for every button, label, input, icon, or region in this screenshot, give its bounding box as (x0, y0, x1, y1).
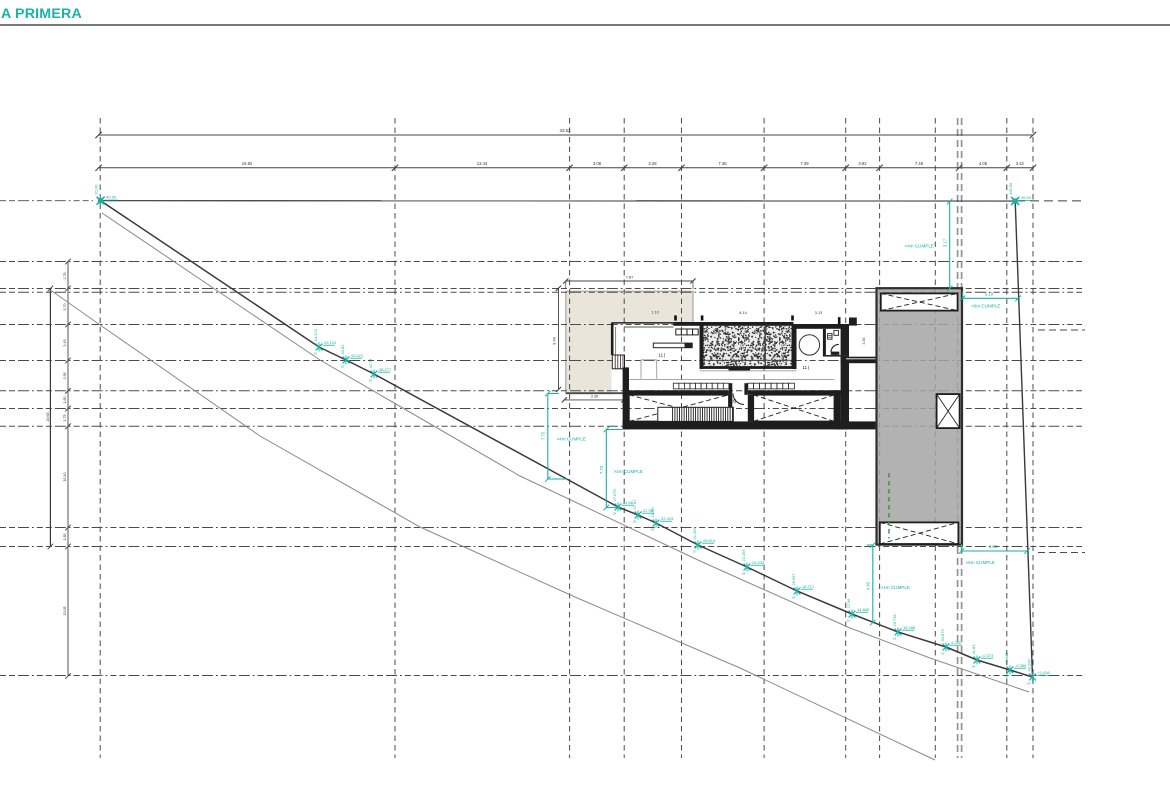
svg-text:27.679: 27.679 (612, 488, 617, 501)
svg-text:100.00: 100.00 (1008, 182, 1013, 195)
svg-text:27.87: 27.87 (632, 499, 637, 510)
svg-text:D9: D9 (792, 596, 796, 600)
svg-text:3.45: 3.45 (63, 340, 67, 347)
svg-text:18.288: 18.288 (903, 625, 916, 630)
svg-text:18.717: 18.717 (802, 584, 815, 589)
svg-text:D3: D3 (941, 652, 945, 656)
svg-text:7.70: 7.70 (599, 465, 604, 474)
svg-text:>4m CUMPLE: >4m CUMPLE (905, 244, 935, 249)
svg-text:3.17: 3.17 (942, 238, 947, 247)
svg-text:43.82: 43.82 (340, 344, 345, 355)
svg-text:7.46: 7.46 (915, 161, 924, 166)
svg-text:22.165: 22.165 (741, 548, 746, 561)
svg-text:D1: D1 (314, 352, 318, 356)
svg-text:16.82: 16.82 (242, 161, 253, 166)
svg-text:21.40: 21.40 (650, 507, 655, 518)
svg-text:33.62: 33.62 (560, 128, 572, 133)
svg-text:13.05: 13.05 (63, 607, 67, 616)
svg-text:20.65: 20.65 (46, 413, 50, 422)
svg-text:3.46: 3.46 (862, 338, 866, 345)
svg-text:3.28: 3.28 (648, 161, 657, 166)
svg-text:30.879: 30.879 (940, 628, 945, 641)
svg-text:26.814: 26.814 (703, 538, 716, 543)
svg-text:D6: D6 (1027, 682, 1031, 686)
svg-text:43.021: 43.021 (351, 353, 364, 358)
svg-text:3.13: 3.13 (815, 311, 822, 315)
svg-text:-0.373: -0.373 (982, 653, 994, 658)
svg-text:D4: D4 (613, 512, 617, 516)
svg-text:13.44: 13.44 (477, 161, 488, 166)
svg-text:5.19: 5.19 (985, 292, 994, 297)
svg-text:3.36: 3.36 (591, 395, 598, 399)
svg-text:>6m CUMPLE: >6m CUMPLE (966, 560, 996, 565)
svg-text:9.46: 9.46 (552, 337, 556, 344)
svg-text:40.60: 40.60 (106, 195, 117, 200)
svg-text:>4m CUMPLE: >4m CUMPLE (557, 437, 587, 442)
svg-text:29.735: 29.735 (892, 613, 897, 626)
svg-text:2.95: 2.95 (63, 373, 67, 380)
svg-text:D2: D2 (893, 637, 897, 641)
svg-text:D1: D1 (847, 619, 851, 623)
svg-text:7.36: 7.36 (718, 161, 727, 166)
svg-text:3.70: 3.70 (63, 304, 67, 311)
svg-text:4.285: 4.285 (951, 640, 962, 645)
svg-text:8.14: 8.14 (739, 311, 746, 315)
svg-text:A PRIMERA: A PRIMERA (1, 6, 82, 22)
svg-text:D6: D6 (651, 528, 655, 532)
svg-text:27.96: 27.96 (846, 598, 851, 609)
svg-text:11 |: 11 | (803, 365, 810, 370)
svg-text:4.40: 4.40 (866, 581, 871, 590)
svg-text:+1.430: +1.430 (1038, 670, 1051, 675)
svg-text:D5: D5 (1005, 675, 1009, 679)
svg-text:44.124: 44.124 (313, 328, 318, 341)
svg-text:7.87: 7.87 (626, 275, 635, 280)
svg-text:14.865: 14.865 (857, 607, 870, 612)
svg-text:11 |: 11 | (659, 352, 666, 357)
svg-text:-0.386: -0.386 (1015, 663, 1027, 668)
svg-text:>4m CUMPLE: >4m CUMPLE (881, 585, 911, 590)
svg-text:D4: D4 (972, 665, 976, 669)
svg-text:26.997: 26.997 (791, 572, 796, 585)
svg-text:4.05: 4.05 (979, 161, 988, 166)
svg-text:43.200: 43.200 (1026, 658, 1031, 671)
svg-text:3.42: 3.42 (1016, 161, 1025, 166)
svg-text:4.01: 4.01 (989, 544, 998, 549)
svg-text:7.39: 7.39 (800, 161, 809, 166)
svg-text:43.124: 43.124 (324, 340, 337, 345)
svg-text:D3: D3 (369, 379, 373, 383)
svg-text:2.78: 2.78 (63, 273, 67, 280)
svg-text:D5: D5 (633, 520, 637, 524)
svg-text:38.277: 38.277 (379, 367, 392, 372)
svg-text:43.905: 43.905 (1004, 651, 1009, 664)
svg-text:>6m CUMPLE: >6m CUMPLE (971, 304, 1001, 309)
svg-text:7.75: 7.75 (541, 431, 546, 440)
svg-text:24.335: 24.335 (752, 560, 765, 565)
svg-text:3.08: 3.08 (593, 161, 602, 166)
svg-text:D2: D2 (341, 365, 345, 369)
svg-text:1.85: 1.85 (63, 534, 67, 541)
svg-text:42.77: 42.77 (368, 358, 373, 369)
svg-text:D8: D8 (742, 572, 746, 576)
svg-text:21.394: 21.394 (692, 526, 697, 539)
svg-text:D7: D7 (693, 550, 697, 554)
svg-text:1.80: 1.80 (63, 397, 67, 404)
svg-text:20.00: 20.00 (94, 184, 99, 195)
svg-text:41.81: 41.81 (971, 644, 976, 655)
svg-text:>4m CUMPLE: >4m CUMPLE (614, 469, 644, 474)
svg-text:1.10: 1.10 (651, 311, 658, 315)
svg-text:3.92: 3.92 (858, 161, 867, 166)
svg-text:22.403: 22.403 (661, 516, 674, 521)
svg-text:1.75: 1.75 (63, 415, 67, 422)
svg-text:20.00: 20.00 (1021, 195, 1032, 200)
svg-text:10.10: 10.10 (63, 473, 67, 482)
